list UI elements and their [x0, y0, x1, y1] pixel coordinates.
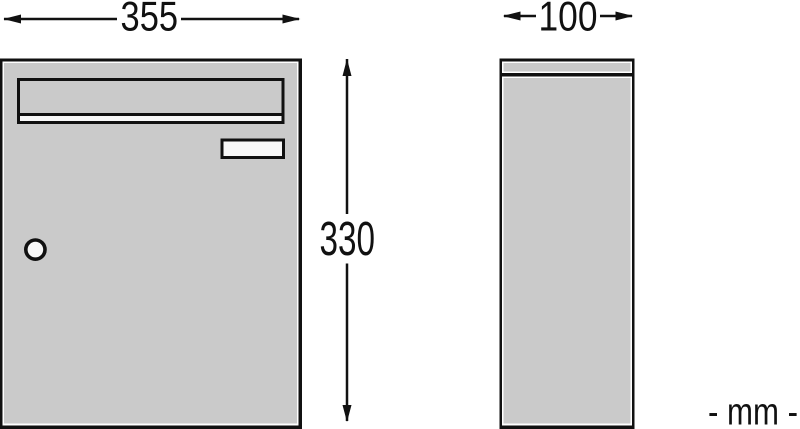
svg-text:355: 355 [121, 0, 179, 40]
svg-text:330: 330 [320, 213, 376, 266]
svg-text:100: 100 [539, 0, 598, 40]
svg-text:- mm -: - mm - [708, 392, 798, 429]
